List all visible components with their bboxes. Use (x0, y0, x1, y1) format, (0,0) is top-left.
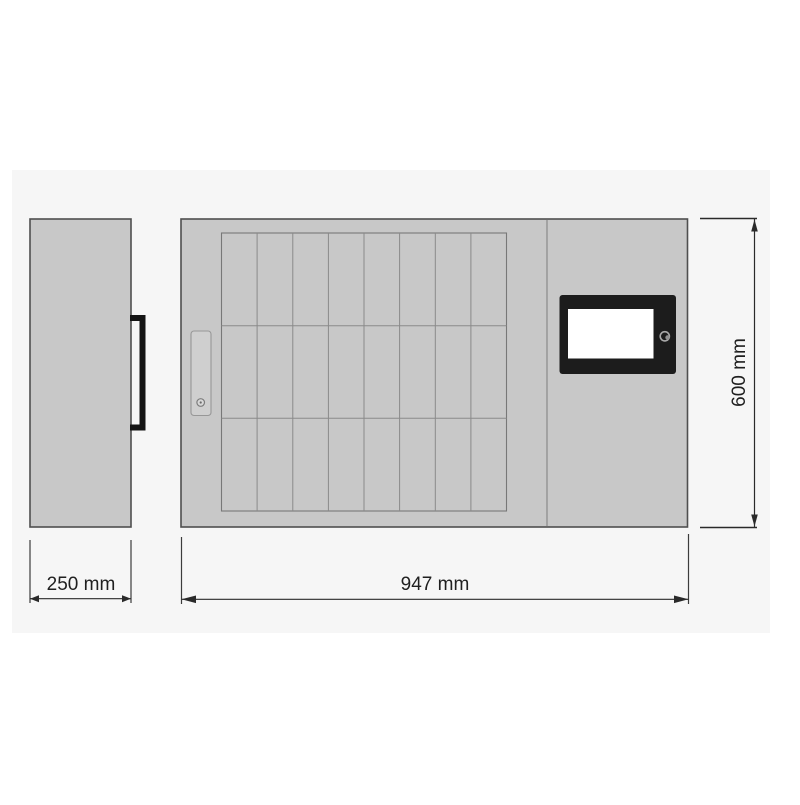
svg-text:600 mm: 600 mm (729, 338, 750, 407)
svg-text:250 mm: 250 mm (47, 574, 116, 595)
svg-text:947 mm: 947 mm (401, 574, 470, 595)
